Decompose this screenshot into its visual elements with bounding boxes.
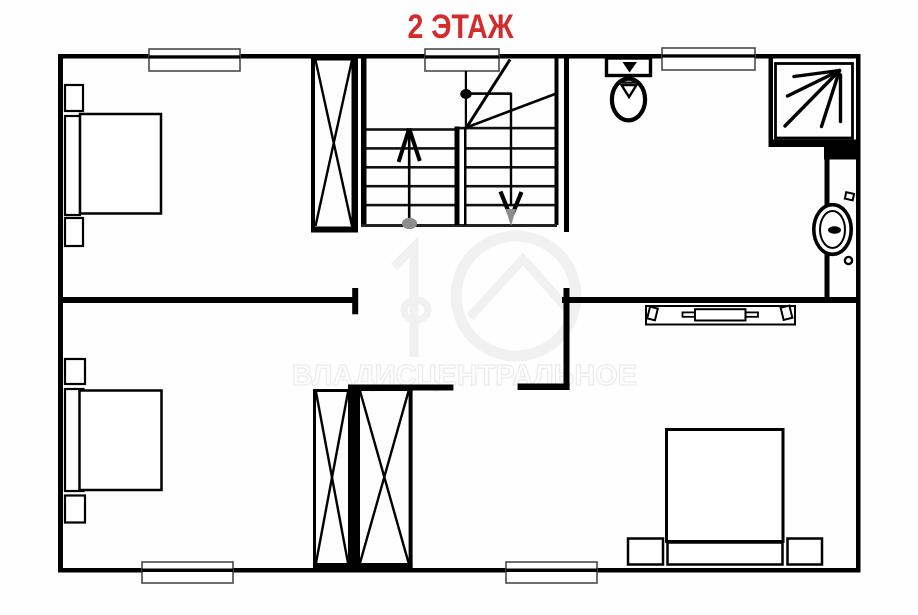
svg-text:ВЛАДИСЦЕНТРАЛЬНОЕ: ВЛАДИСЦЕНТРАЛЬНОЕ [292,360,637,392]
svg-text:2 ЭТАЖ: 2 ЭТАЖ [408,8,514,46]
